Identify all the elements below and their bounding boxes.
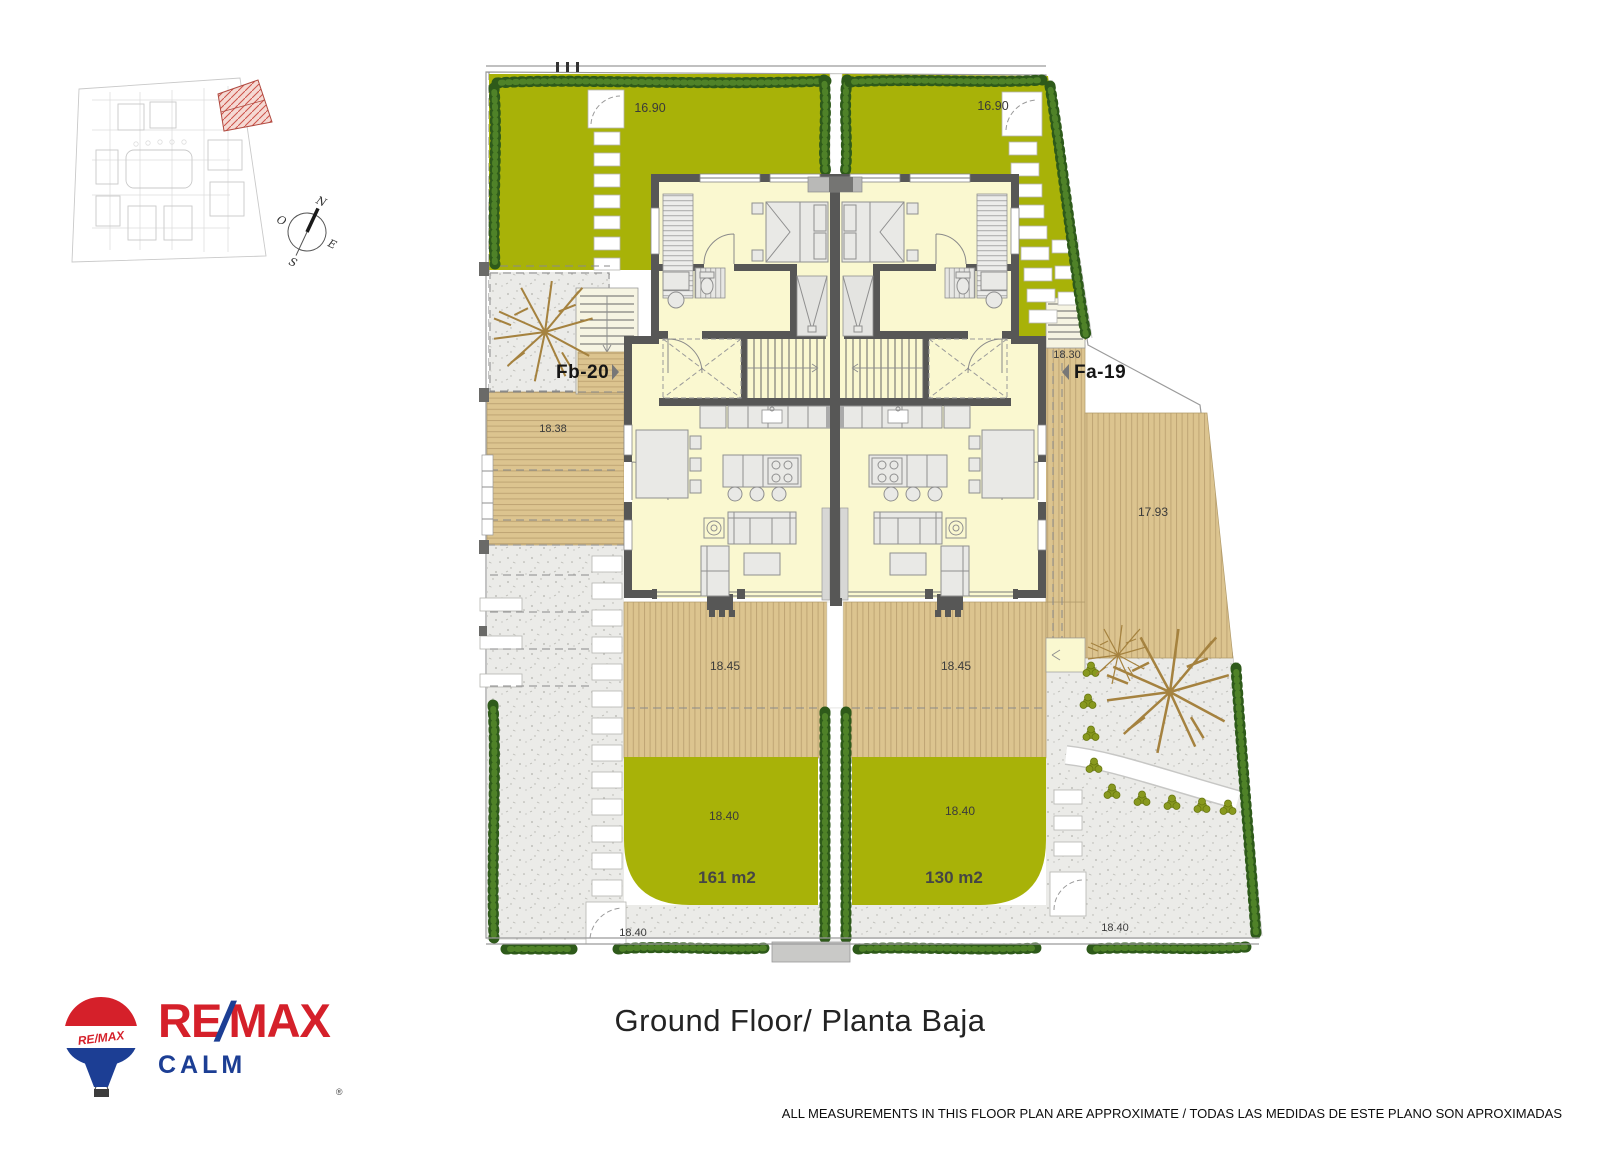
label-plot-right-area: 130 m2 — [925, 868, 983, 887]
gate-center — [772, 942, 850, 962]
logo-office-name: CALM — [158, 1051, 330, 1080]
deck-east-strip — [1046, 345, 1085, 602]
building — [624, 174, 1046, 617]
disclaimer-text: ALL MEASUREMENTS IN THIS FLOOR PLAN ARE … — [782, 1106, 1562, 1121]
compass-west-label: O — [275, 213, 289, 229]
floor-plan-canvas: N S O E — [0, 0, 1600, 1153]
label-unit-left-id: Fb-20 — [556, 362, 609, 383]
label-entry-right-level: 18.30 — [1053, 349, 1081, 361]
compass-rose: N S O E — [261, 182, 353, 282]
label-gravel-left-level: 18.40 — [619, 927, 647, 939]
logo-wordmark: RE/MAX — [158, 995, 330, 1049]
registered-mark: ® — [336, 1087, 343, 1097]
label-unit-right-id: Fa-19 — [1074, 362, 1126, 383]
floor-plan-page: N S O E — [0, 0, 1600, 1153]
stepping-stones-driveway — [586, 556, 626, 944]
logo-re: RE — [158, 994, 221, 1047]
key-map-highlighted-plot — [218, 80, 272, 131]
label-garden-right-area: 16.90 — [977, 99, 1008, 113]
deck-left-18-38 — [487, 392, 624, 545]
label-gravel-right-level: 18.40 — [1101, 922, 1129, 934]
compass-north-label: N — [313, 193, 328, 209]
terrace-right — [843, 602, 1046, 758]
label-terrace-right-area: 18.45 — [941, 659, 971, 673]
compass-south-label: S — [287, 255, 300, 270]
logo-max: MAX — [228, 994, 329, 1047]
deck-right-17-93 — [1085, 413, 1233, 658]
terrace-left — [624, 602, 827, 758]
label-lawn-right-level: 18.40 — [945, 804, 975, 818]
site-key-map — [72, 78, 272, 262]
label-garden-left-area: 16.90 — [634, 101, 665, 115]
label-plot-left-area: 161 m2 — [698, 868, 756, 887]
remax-logo: RE/MAX RE/MAX CALM ® — [58, 995, 343, 1105]
label-deck-left-level: 18.38 — [539, 423, 567, 435]
label-terrace-left-area: 18.45 — [710, 659, 740, 673]
label-lawn-left-level: 18.40 — [709, 809, 739, 823]
compass-east-label: E — [325, 236, 339, 252]
remax-balloon-icon: RE/MAX — [58, 995, 144, 1105]
label-deck-right-area: 17.93 — [1138, 505, 1168, 519]
